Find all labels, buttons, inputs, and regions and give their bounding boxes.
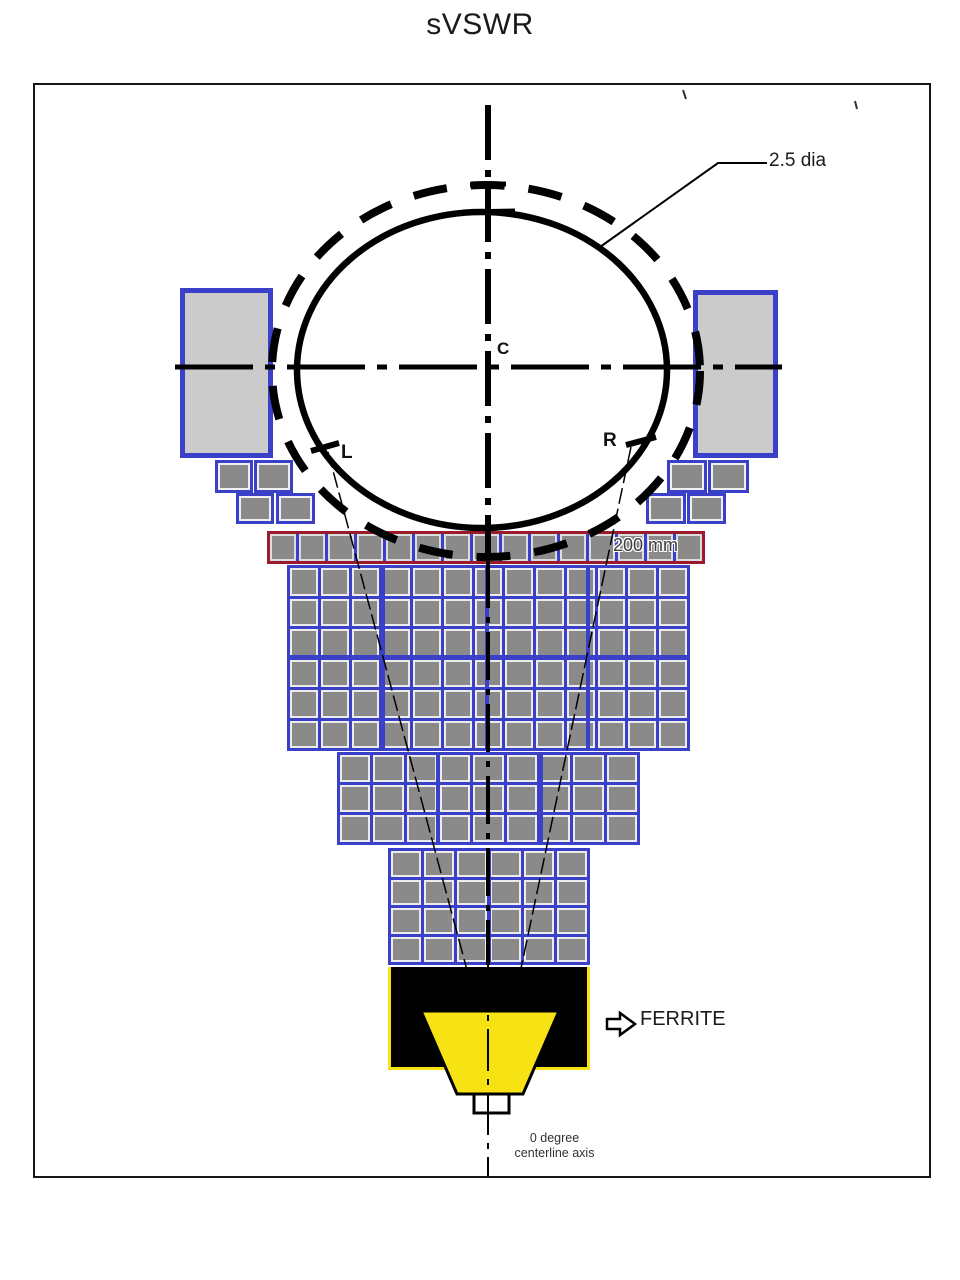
absorber-tile bbox=[598, 721, 626, 749]
absorber-tile bbox=[567, 568, 595, 596]
absorber-tile bbox=[407, 815, 437, 842]
absorber-tile bbox=[659, 721, 687, 749]
centerline-axis-label: 0 degree centerline axis bbox=[472, 1131, 637, 1161]
absorber-tile bbox=[536, 568, 564, 596]
absorber-tile bbox=[382, 660, 410, 688]
absorber-tile bbox=[573, 815, 603, 842]
absorber-tile bbox=[352, 568, 380, 596]
absorber-tile bbox=[628, 690, 656, 718]
absorber-tile bbox=[531, 534, 557, 561]
absorber-tile bbox=[424, 851, 454, 877]
absorber-tile bbox=[473, 755, 503, 782]
absorber-tile bbox=[444, 660, 472, 688]
absorber-tile bbox=[444, 629, 472, 657]
absorber-tile bbox=[505, 721, 533, 749]
absorber-tile bbox=[413, 690, 441, 718]
absorber-tile bbox=[413, 721, 441, 749]
left-point-label: L bbox=[341, 442, 353, 464]
axis-label-line2: centerline axis bbox=[472, 1146, 637, 1161]
center-point-label: C bbox=[497, 339, 509, 359]
absorber-tile bbox=[352, 629, 380, 657]
absorber-tile bbox=[340, 755, 370, 782]
absorber-tile bbox=[290, 721, 318, 749]
absorber-group-divider bbox=[287, 655, 690, 659]
absorber-tile bbox=[321, 721, 349, 749]
step-block bbox=[276, 493, 315, 524]
absorber-tile bbox=[505, 568, 533, 596]
absorber-tile bbox=[490, 851, 520, 877]
absorber-wall-middle bbox=[337, 752, 640, 845]
side-panel-left bbox=[180, 288, 273, 458]
absorber-tile bbox=[557, 908, 587, 934]
absorber-tile bbox=[290, 660, 318, 688]
side-panel-right bbox=[693, 290, 778, 458]
absorber-tile bbox=[490, 908, 520, 934]
absorber-tile bbox=[382, 599, 410, 627]
absorber-tile bbox=[352, 660, 380, 688]
absorber-tile bbox=[373, 785, 403, 812]
absorber-tile bbox=[290, 690, 318, 718]
absorber-tile bbox=[382, 568, 410, 596]
absorber-tile bbox=[391, 937, 421, 963]
absorber-tile bbox=[413, 599, 441, 627]
absorber-tile bbox=[382, 629, 410, 657]
absorber-tile bbox=[391, 880, 421, 906]
absorber-tile bbox=[507, 755, 537, 782]
absorber-tile bbox=[659, 629, 687, 657]
absorber-tile bbox=[557, 937, 587, 963]
absorber-tile bbox=[659, 599, 687, 627]
absorber-tile bbox=[391, 851, 421, 877]
absorber-tile bbox=[567, 660, 595, 688]
absorber-tile bbox=[567, 629, 595, 657]
step-block bbox=[646, 493, 686, 524]
absorber-tile bbox=[659, 568, 687, 596]
absorber-tile bbox=[321, 568, 349, 596]
absorber-tile bbox=[407, 785, 437, 812]
row-width-label: 200 mm bbox=[613, 535, 678, 556]
absorber-tile bbox=[270, 534, 296, 561]
absorber-tile bbox=[444, 568, 472, 596]
absorber-tile bbox=[490, 937, 520, 963]
absorber-tile bbox=[444, 690, 472, 718]
absorber-tile bbox=[560, 534, 586, 561]
absorber-tile bbox=[321, 690, 349, 718]
absorber-tile bbox=[628, 629, 656, 657]
absorber-tile bbox=[407, 755, 437, 782]
step-block bbox=[667, 460, 707, 493]
absorber-tile bbox=[536, 660, 564, 688]
absorber-tile bbox=[567, 721, 595, 749]
absorber-tile bbox=[413, 568, 441, 596]
page-title: sVSWR bbox=[0, 8, 960, 42]
absorber-tile bbox=[473, 785, 503, 812]
absorber-group-divider bbox=[539, 752, 543, 845]
axis-label-line1: 0 degree bbox=[472, 1131, 637, 1146]
absorber-tile bbox=[321, 629, 349, 657]
absorber-tile bbox=[386, 534, 412, 561]
absorber-tile bbox=[540, 785, 570, 812]
absorber-tile bbox=[598, 660, 626, 688]
absorber-tile bbox=[628, 599, 656, 627]
absorber-tile bbox=[321, 599, 349, 627]
absorber-tile bbox=[573, 755, 603, 782]
absorber-tile bbox=[473, 815, 503, 842]
absorber-tile bbox=[507, 785, 537, 812]
step-block bbox=[687, 493, 726, 524]
absorber-tile bbox=[598, 568, 626, 596]
absorber-tile bbox=[424, 880, 454, 906]
absorber-tile bbox=[505, 660, 533, 688]
absorber-group-divider bbox=[487, 848, 491, 965]
absorber-group-divider bbox=[436, 752, 440, 845]
absorber-tile bbox=[352, 721, 380, 749]
absorber-tile bbox=[352, 599, 380, 627]
absorber-tile bbox=[457, 937, 487, 963]
absorber-tile bbox=[589, 534, 615, 561]
absorber-tile bbox=[598, 690, 626, 718]
absorber-tile bbox=[628, 721, 656, 749]
absorber-tile bbox=[557, 880, 587, 906]
absorber-tile bbox=[536, 690, 564, 718]
absorber-tile bbox=[567, 599, 595, 627]
absorber-tile bbox=[357, 534, 383, 561]
absorber-tile bbox=[607, 755, 637, 782]
absorber-tile bbox=[444, 721, 472, 749]
absorber-tile bbox=[598, 629, 626, 657]
absorber-tile bbox=[373, 815, 403, 842]
absorber-tile bbox=[299, 534, 325, 561]
absorber-tile bbox=[567, 690, 595, 718]
absorber-tile bbox=[540, 755, 570, 782]
absorber-tile bbox=[382, 721, 410, 749]
absorber-tile bbox=[290, 568, 318, 596]
step-block bbox=[254, 460, 293, 493]
absorber-tile bbox=[391, 908, 421, 934]
absorber-tile bbox=[444, 534, 470, 561]
diameter-label: 2.5 dia bbox=[769, 150, 826, 172]
absorber-tile bbox=[505, 629, 533, 657]
step-block bbox=[236, 493, 274, 524]
absorber-tile bbox=[536, 721, 564, 749]
absorber-tile bbox=[628, 568, 656, 596]
step-block bbox=[215, 460, 253, 493]
right-point-label: R bbox=[603, 430, 617, 452]
absorber-tile bbox=[290, 629, 318, 657]
absorber-tile bbox=[573, 785, 603, 812]
absorber-tile bbox=[524, 880, 554, 906]
absorber-tile bbox=[607, 815, 637, 842]
absorber-tile bbox=[524, 851, 554, 877]
absorber-tile bbox=[659, 660, 687, 688]
absorber-tile bbox=[413, 660, 441, 688]
ferrite-label: FERRITE bbox=[640, 1008, 726, 1031]
absorber-tile bbox=[440, 785, 470, 812]
absorber-tile bbox=[382, 690, 410, 718]
absorber-tile bbox=[505, 599, 533, 627]
absorber-tile bbox=[598, 599, 626, 627]
absorber-tile bbox=[457, 908, 487, 934]
absorber-tile bbox=[415, 534, 441, 561]
absorber-tile bbox=[440, 815, 470, 842]
absorber-tile bbox=[440, 755, 470, 782]
absorber-tile bbox=[457, 851, 487, 877]
absorber-tile bbox=[507, 815, 537, 842]
absorber-tile bbox=[290, 599, 318, 627]
absorber-tile bbox=[473, 534, 499, 561]
absorber-tile bbox=[340, 785, 370, 812]
absorber-tile bbox=[490, 880, 520, 906]
absorber-tile bbox=[424, 937, 454, 963]
absorber-tile bbox=[524, 908, 554, 934]
absorber-tile bbox=[352, 690, 380, 718]
absorber-tile bbox=[413, 629, 441, 657]
absorber-tile bbox=[628, 660, 656, 688]
step-block bbox=[708, 460, 749, 493]
absorber-tile bbox=[321, 660, 349, 688]
absorber-tile bbox=[524, 937, 554, 963]
absorber-tile bbox=[557, 851, 587, 877]
absorber-tile bbox=[536, 629, 564, 657]
absorber-tile bbox=[444, 599, 472, 627]
antenna-housing-block bbox=[388, 967, 590, 1070]
absorber-tile bbox=[340, 815, 370, 842]
absorber-tile bbox=[502, 534, 528, 561]
absorber-tile bbox=[659, 690, 687, 718]
absorber-tile bbox=[328, 534, 354, 561]
absorber-tile bbox=[607, 785, 637, 812]
absorber-tile bbox=[457, 880, 487, 906]
absorber-tile bbox=[505, 690, 533, 718]
absorber-tile bbox=[536, 599, 564, 627]
absorber-tile bbox=[424, 908, 454, 934]
absorber-tile bbox=[373, 755, 403, 782]
absorber-tile bbox=[540, 815, 570, 842]
absorber-tile bbox=[676, 534, 702, 561]
